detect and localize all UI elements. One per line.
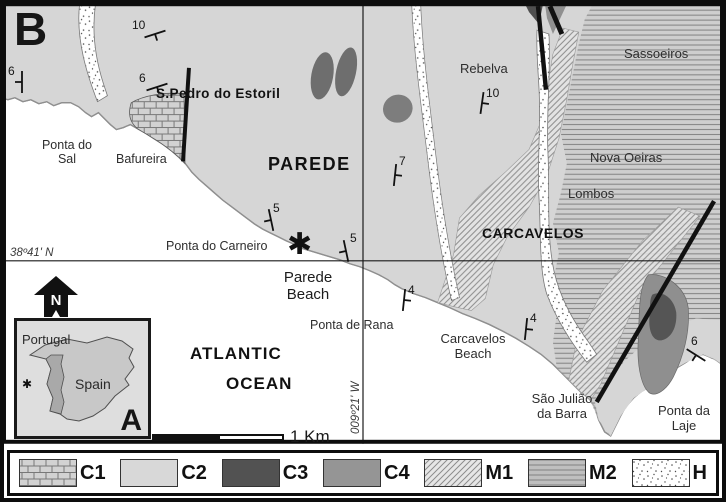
legend-item-c4: C4 (323, 459, 410, 487)
legend-code: C1 (80, 462, 106, 485)
ocean-label-ocean: OCEAN (226, 374, 292, 393)
inset-panel-letter: A (120, 406, 142, 436)
legend-code: C2 (181, 462, 207, 485)
place-label-rebelva: Rebelva (460, 62, 508, 77)
legend-code: M1 (485, 462, 513, 485)
legend-swatch-c4 (323, 459, 381, 487)
scale-bar: 1 Km (152, 427, 330, 447)
legend-item-c1: C1 (19, 459, 106, 487)
place-label-carcavelos-beach: Carcavelos Beach (432, 332, 514, 361)
legend-swatch-c1 (19, 459, 77, 487)
dip-value: 5 (350, 231, 357, 245)
legend-swatch-c3 (222, 459, 280, 487)
place-label-parede-beach: Parede Beach (272, 270, 344, 304)
legend-panel: C1 C2 C3 C4 M1 M2 H (7, 450, 719, 496)
place-label-parede: PAREDE (268, 154, 351, 174)
north-arrow-label: N (34, 292, 78, 309)
dip-value: 6 (139, 71, 146, 85)
dip-value: 7 (399, 154, 406, 168)
inset-site-marker-icon: ✱ (22, 377, 32, 391)
longitude-label: 009º21' W (350, 344, 363, 434)
legend-swatch-c2 (120, 459, 178, 487)
latitude-label: 38º41' N (10, 247, 53, 260)
scale-bar-label: 1 Km (290, 427, 330, 447)
legend-swatch-m2 (528, 459, 586, 487)
legend-item-m1: M1 (424, 459, 513, 487)
place-label-bafureira: Bafureira (116, 152, 167, 166)
legend-item-m2: M2 (528, 459, 617, 487)
dip-value: 6 (691, 334, 698, 348)
place-label-sao-juliao: São Julião da Barra (522, 392, 602, 421)
scale-bar-open-segment (218, 434, 284, 441)
legend-swatch-m1 (424, 459, 482, 487)
dip-value: 5 (273, 201, 280, 215)
legend-item-h: H (632, 459, 707, 487)
scale-bar-solid-segment (152, 434, 218, 441)
place-label-spedro: S.Pedro do Estoril (156, 86, 280, 101)
legend-item-c3: C3 (222, 459, 309, 487)
geologic-map-figure: B S.Pedro do Estoril Ponta do Sal Bafure… (0, 0, 726, 502)
place-label-carcavelos: CARCAVELOS (482, 226, 584, 242)
dip-value: 10 (132, 18, 145, 32)
place-label-ponta-de-rana: Ponta de Rana (310, 318, 393, 332)
map-panel: B S.Pedro do Estoril Ponta do Sal Bafure… (4, 4, 722, 444)
strike-dip-icon (256, 205, 287, 236)
legend-code: M2 (589, 462, 617, 485)
inset-location-map: Portugal Spain ✱ A (14, 318, 151, 439)
legend-swatch-h (632, 459, 690, 487)
dip-value: 6 (8, 64, 15, 78)
legend-item-c2: C2 (120, 459, 207, 487)
place-label-nova-oeiras: Nova Oeiras (590, 151, 662, 166)
place-label-lombos: Lombos (568, 187, 614, 202)
dip-value: 4 (530, 311, 537, 325)
place-label-sassoeiros: Sassoeiros (624, 47, 688, 62)
ocean-label-atlantic: ATLANTIC (190, 344, 282, 363)
inset-label-spain: Spain (75, 377, 111, 393)
legend-code: C3 (283, 462, 309, 485)
dip-value: 4 (408, 283, 415, 297)
site-marker-asterisk-icon: ✱ (287, 230, 312, 260)
north-arrow: N (34, 276, 78, 320)
place-label-ponta-da-laje: Ponta da Laje (646, 404, 722, 433)
inset-label-portugal: Portugal (22, 333, 70, 348)
legend-code: C4 (384, 462, 410, 485)
place-label-ponta-do-carneiro: Ponta do Carneiro (166, 239, 267, 253)
place-label-ponta-do-sal: Ponta do Sal (32, 138, 102, 166)
dip-value: 10 (486, 86, 499, 100)
map-panel-letter: B (14, 6, 47, 52)
legend-code: H (693, 462, 707, 485)
